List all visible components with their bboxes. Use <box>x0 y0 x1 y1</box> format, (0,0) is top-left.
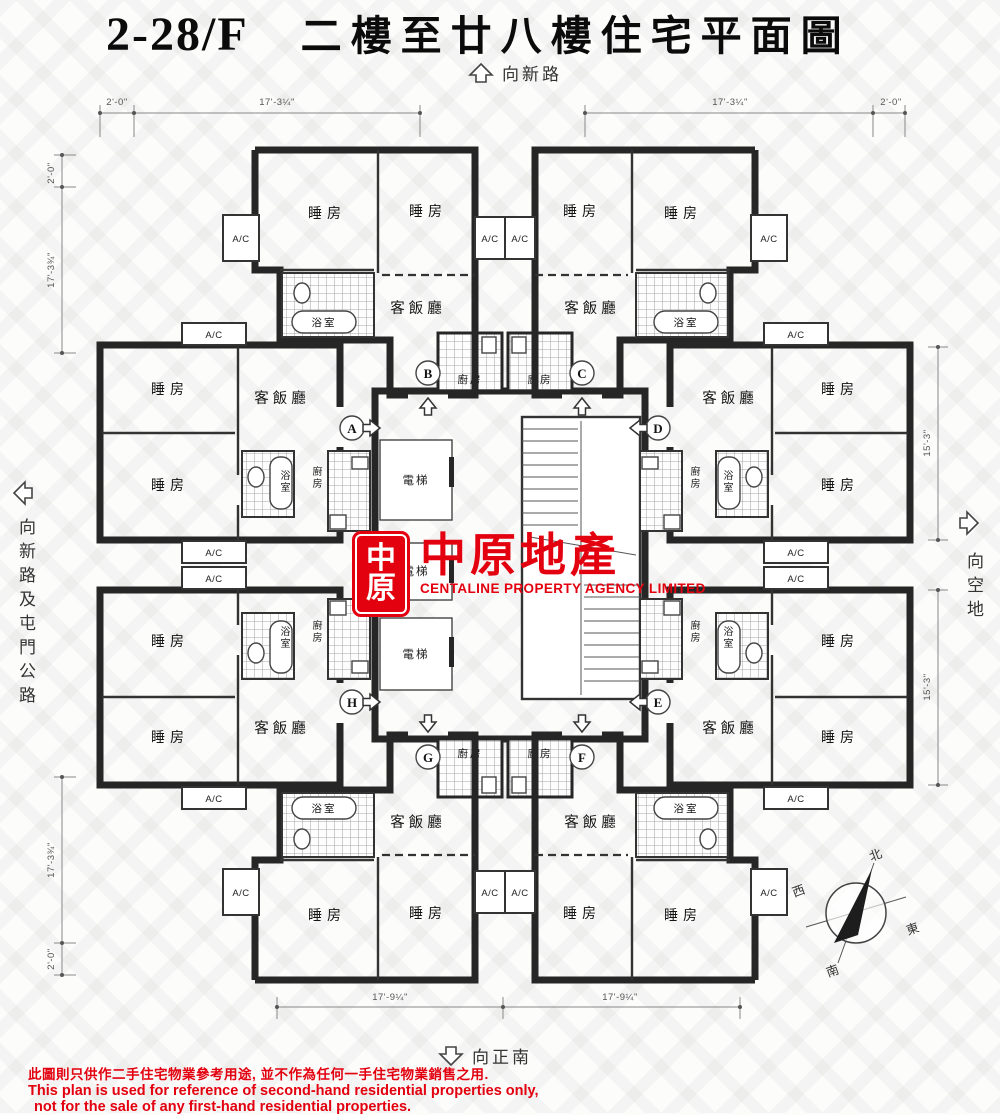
bedroom-g2-label: 睡房 <box>409 905 447 921</box>
floor-range: 2-28/F <box>106 7 249 62</box>
compass-east: 東 <box>904 920 921 938</box>
bedroom-a1-label: 睡房 <box>151 381 189 397</box>
bathroom-c-label: 浴室 <box>674 316 699 329</box>
ac-h2-label: A/C <box>205 794 222 805</box>
ac-d1-label: A/C <box>787 330 804 341</box>
unit-e-letter: E <box>654 695 663 710</box>
living-e-label: 客飯廳 <box>702 719 758 737</box>
logo-name-en: CENTALINE PROPERTY AGENCY LIMITED <box>420 581 706 596</box>
elevator-3-label: 電梯 <box>403 648 430 661</box>
bedroom-e1-label: 睡房 <box>821 633 859 649</box>
elevator-1-label: 電梯 <box>403 474 430 487</box>
orientation-top-label: 向新路 <box>502 60 562 85</box>
bedroom-a2-label: 睡房 <box>151 477 189 493</box>
logo-name-zh: 中原地產 <box>420 531 706 579</box>
unit-g-letter: G <box>423 750 433 765</box>
dim-left-lower-small: 2'-0" <box>46 948 57 969</box>
toilet-icon <box>700 283 716 303</box>
entrance-arrow-c <box>574 398 590 415</box>
kitchen-g-label: 廚房 <box>458 747 483 760</box>
ac-g2-label: A/C <box>481 888 498 899</box>
toilet-icon <box>746 643 762 663</box>
kitchen-h-vlabel: 廚房 <box>308 620 323 644</box>
ac-d2-label: A/C <box>787 548 804 559</box>
living-c-label: 客飯廳 <box>564 299 620 317</box>
entrance-arrow-g <box>420 715 436 732</box>
entrance-arrow-f <box>574 715 590 732</box>
bathroom-a-vlabel: 浴室 <box>276 470 291 494</box>
bathroom-h-vlabel: 浴室 <box>276 626 291 650</box>
dim-left-upper: 17'-3¾" <box>46 252 57 288</box>
bedroom-g1-label: 睡房 <box>308 907 346 923</box>
dim-top-right-small: 2'-0" <box>880 97 901 108</box>
unit-f-letter: F <box>578 750 586 765</box>
bathroom-e-vlabel: 浴室 <box>719 626 734 650</box>
bedroom-f1-label: 睡房 <box>563 905 601 921</box>
unit-d: 睡房 睡房 客飯廳 A/C A/C D <box>630 323 910 563</box>
kitchen-f-label: 廚房 <box>528 747 553 760</box>
unit-h: 睡房 睡房 客飯廳 A/C A/C H <box>100 567 380 809</box>
ac-a2-label: A/C <box>205 548 222 559</box>
bedroom-d2-label: 睡房 <box>821 477 859 493</box>
bathroom-g-label: 浴室 <box>312 802 337 815</box>
dim-top-right: 17'-3¼" <box>712 97 748 108</box>
bedroom-b1-label: 睡房 <box>308 205 346 221</box>
ac-f2-label: A/C <box>511 888 528 899</box>
bedroom-c2-label: 睡房 <box>664 205 702 221</box>
ac-b1-label: A/C <box>232 234 249 245</box>
disclaimer-en-line1: This plan is used for reference of secon… <box>28 1083 539 1099</box>
ac-h1-label: A/C <box>205 574 222 585</box>
living-h-label: 客飯廳 <box>254 719 310 737</box>
compass-south: 南 <box>824 962 841 980</box>
living-f-label: 客飯廳 <box>564 813 620 831</box>
kitchen-c-label: 廚房 <box>528 373 553 386</box>
living-a-label: 客飯廳 <box>254 389 310 407</box>
bathroom-b-label: 浴室 <box>312 316 337 329</box>
unit-b-letter: B <box>424 366 433 381</box>
unit-d-letter: D <box>653 421 662 436</box>
dim-right-upper: 15'-3" <box>922 429 933 456</box>
ac-c1-label: A/C <box>760 234 777 245</box>
ac-a1-label: A/C <box>205 330 222 341</box>
seal-char-top: 中 <box>366 544 396 574</box>
ac-e2-label: A/C <box>787 794 804 805</box>
kitchen-d-vlabel: 廚房 <box>686 466 701 490</box>
kitchen-e-vlabel: 廚房 <box>686 620 701 644</box>
dim-left-small: 2'-0" <box>46 162 57 183</box>
kitchen-a-vlabel: 廚房 <box>308 466 323 490</box>
bedroom-c1-label: 睡房 <box>563 203 601 219</box>
unit-a-letter: A <box>347 421 357 436</box>
ac-c2-label: A/C <box>511 234 528 245</box>
compass-north: 北 <box>867 846 884 864</box>
bathroom-f-label: 浴室 <box>674 802 699 815</box>
toilet-icon <box>248 643 264 663</box>
dim-right-lower: 15'-3" <box>922 673 933 700</box>
bathroom-d-vlabel: 浴室 <box>719 470 734 494</box>
dim-top-left: 17'-3¼" <box>259 97 295 108</box>
title-chinese: 二樓至廿八樓住宅平面圖 <box>301 2 851 62</box>
ac-e1-label: A/C <box>787 574 804 585</box>
kitchen-b-label: 廚房 <box>458 373 483 386</box>
arrow-up-icon <box>468 62 494 84</box>
compass: 北 西 南 東 <box>790 846 921 980</box>
entrance-arrow-b <box>420 398 436 415</box>
toilet-icon <box>700 829 716 849</box>
living-g-label: 客飯廳 <box>390 813 446 831</box>
toilet-icon <box>294 829 310 849</box>
unit-c-letter: C <box>577 366 586 381</box>
centaline-seal-icon: 中 原 <box>352 531 410 617</box>
unit-a: 睡房 睡房 客飯廳 A/C A/C A <box>100 323 380 563</box>
bedroom-h2-label: 睡房 <box>151 729 189 745</box>
ac-f1-label: A/C <box>760 888 777 899</box>
toilet-icon <box>294 283 310 303</box>
dim-bottom-right: 17'-9¼" <box>602 992 638 1003</box>
dim-left-lower: 17'-3¾" <box>46 842 57 878</box>
orientation-top: 向新路 <box>468 60 562 85</box>
compass-west: 西 <box>790 883 807 900</box>
bedroom-d1-label: 睡房 <box>821 381 859 397</box>
unit-h-letter: H <box>347 695 357 710</box>
disclaimer: 此圖則只供作二手住宅物業參考用途, 並不作為任何一手住宅物業銷售之用. This… <box>28 1063 539 1115</box>
centaline-logo: 中 原 中原地產 CENTALINE PROPERTY AGENCY LIMIT… <box>352 531 706 617</box>
seal-char-bottom: 原 <box>366 574 396 604</box>
ac-g1-label: A/C <box>232 888 249 899</box>
toilet-icon <box>746 467 762 487</box>
bedroom-e2-label: 睡房 <box>821 729 859 745</box>
toilet-icon <box>248 467 264 487</box>
dim-bottom-left: 17'-9¼" <box>372 992 408 1003</box>
bedroom-h1-label: 睡房 <box>151 633 189 649</box>
disclaimer-zh: 此圖則只供作二手住宅物業參考用途, 並不作為任何一手住宅物業銷售之用. <box>28 1063 539 1083</box>
living-d-label: 客飯廳 <box>702 389 758 407</box>
living-b-label: 客飯廳 <box>390 299 446 317</box>
page-title: 2-28/F 二樓至廿八樓住宅平面圖 <box>0 2 1000 62</box>
ac-b2-label: A/C <box>481 234 498 245</box>
bedroom-f2-label: 睡房 <box>664 907 702 923</box>
bedroom-b2-label: 睡房 <box>409 203 447 219</box>
dim-top-left-small: 2'-0" <box>106 97 127 108</box>
